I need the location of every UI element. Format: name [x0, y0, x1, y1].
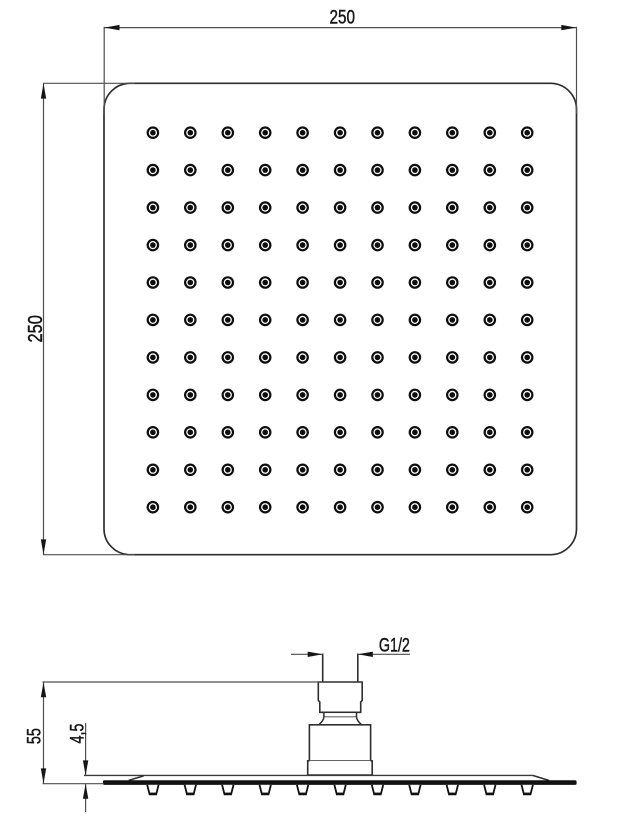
svg-text:250: 250 [329, 7, 355, 28]
svg-text:55: 55 [23, 728, 45, 744]
svg-text:4,5: 4,5 [67, 724, 88, 744]
svg-text:250: 250 [25, 315, 47, 342]
svg-text:G1/2: G1/2 [379, 635, 410, 656]
